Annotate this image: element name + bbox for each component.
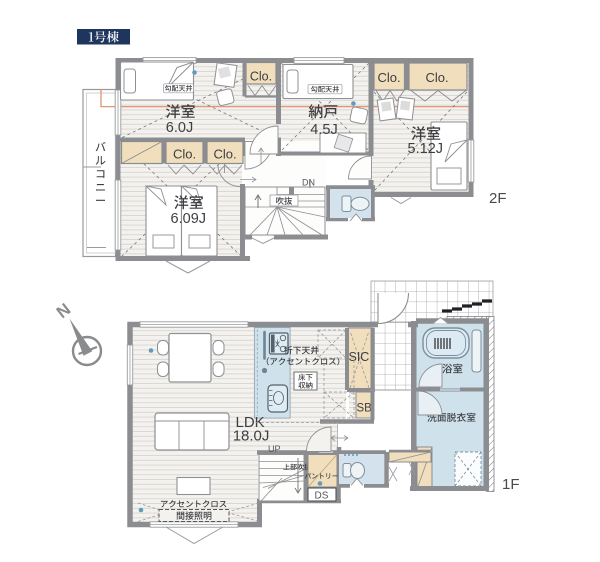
- svg-text:UP: UP: [268, 444, 281, 454]
- svg-text:Clo.: Clo.: [173, 147, 196, 162]
- svg-text:6.0J: 6.0J: [166, 120, 193, 136]
- svg-text:5.12J: 5.12J: [408, 141, 443, 157]
- svg-text:Clo.: Clo.: [425, 70, 448, 85]
- svg-text:4.5J: 4.5J: [310, 122, 337, 138]
- svg-text:1F: 1F: [502, 476, 520, 493]
- svg-text:2F: 2F: [489, 190, 507, 207]
- svg-text:6.09J: 6.09J: [171, 211, 206, 227]
- svg-text:DN: DN: [302, 178, 315, 188]
- svg-text:18.0J: 18.0J: [233, 428, 270, 445]
- svg-text:Clo.: Clo.: [377, 70, 400, 85]
- svg-text:SB: SB: [357, 403, 373, 415]
- svg-text:Clo.: Clo.: [250, 70, 272, 84]
- svg-text:DS: DS: [315, 491, 329, 502]
- svg-text:Clo.: Clo.: [213, 147, 236, 162]
- svg-text:SIC: SIC: [349, 350, 370, 364]
